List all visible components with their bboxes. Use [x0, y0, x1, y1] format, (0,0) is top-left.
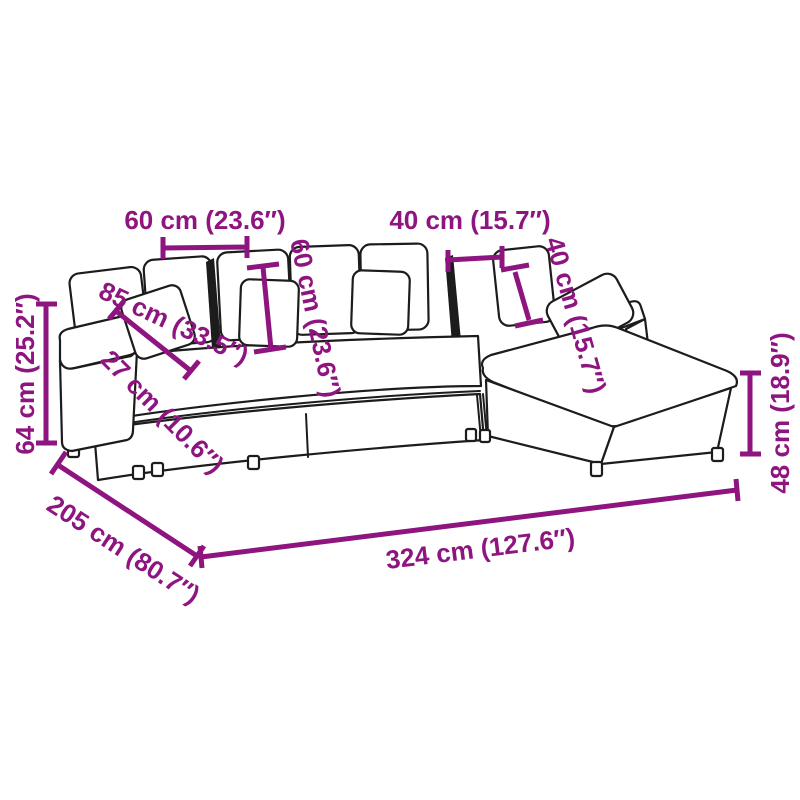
dim-line-seat-height	[740, 373, 761, 454]
sofa-leg	[712, 448, 723, 461]
dim-label-module-width-right: 40 cm (15.7″)	[389, 205, 550, 235]
dimension-diagram-canvas: 60 cm (23.6″) 60 cm (23.6″) 40 cm (15.7″…	[0, 0, 800, 800]
throw-pillow	[351, 270, 410, 335]
sofa-leg	[152, 463, 163, 476]
sofa-leg	[248, 456, 259, 469]
sofa-illustration	[60, 243, 737, 480]
dim-label-overall-height: 64 cm (25.2″)	[10, 293, 40, 454]
sofa-leg	[591, 462, 602, 476]
sofa-ottoman	[482, 326, 737, 465]
dim-label-module-width-left: 60 cm (23.6″)	[124, 205, 285, 235]
sofa-leg	[466, 429, 476, 441]
dim-label-seat-height: 48 cm (18.9″)	[765, 332, 795, 493]
sofa-dimension-diagram: 60 cm (23.6″) 60 cm (23.6″) 40 cm (15.7″…	[0, 0, 800, 800]
sofa-leg	[480, 430, 490, 442]
sofa-leg	[133, 466, 144, 479]
